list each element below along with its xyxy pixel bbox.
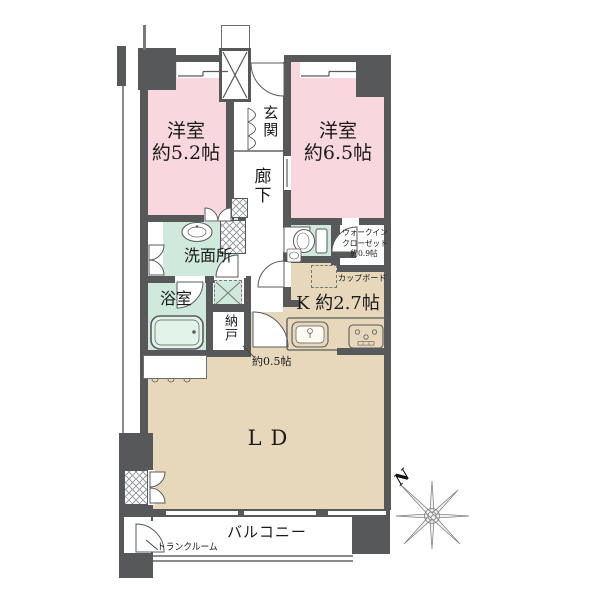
- entrance-door-opening: [251, 55, 284, 62]
- trunk-room-label: トランクルーム: [157, 543, 218, 554]
- cupboard-label: カップボード: [338, 275, 386, 285]
- bedroom2-label: 洋室 約6.5帖: [286, 121, 390, 165]
- living-dining-label: LD: [237, 426, 307, 450]
- counter-storage: [143, 355, 207, 379]
- wall-toilet-wic: [331, 218, 340, 272]
- entrance-step-line: [234, 150, 283, 152]
- kitchen-door-opening: [283, 262, 291, 287]
- wall-storage-top: [213, 304, 251, 312]
- wall-wic-bottom: [339, 265, 388, 272]
- bedroom1-size: 約5.2帖: [134, 143, 238, 165]
- pillar-bottom-right: [352, 509, 390, 554]
- wall-below-bedroom1: [140, 215, 206, 222]
- cupboard-box: [311, 265, 337, 288]
- washroom-closet-door-top: [149, 245, 164, 260]
- washroom-label: 洗面所: [172, 247, 244, 265]
- wic-line3: 約0.9帖: [342, 249, 386, 260]
- wall-counter-stub: [337, 348, 391, 355]
- bath-door-opening: [175, 276, 205, 283]
- neighbor-stub-line: [143, 25, 146, 50]
- trunk-room-cutout: [124, 517, 151, 553]
- bedroom1-label: 洋室 約5.2帖: [134, 121, 238, 165]
- pipe-space-hatch: [231, 198, 248, 218]
- kitchen-label: K 約2.7帖: [288, 294, 388, 315]
- hallway-label: 廊下: [250, 167, 270, 205]
- floor-plan: N 洋室 約5.2帖 洋室 約6.5帖 玄関 廊下 洗面所 浴室 納戸 約0.5…: [0, 0, 600, 600]
- wic-door-opening: [342, 218, 359, 225]
- toilet-door-opening: [283, 228, 291, 252]
- balcony-rail-inner: [153, 560, 353, 562]
- hall-extension-floor: [251, 270, 283, 312]
- storage-label: 納戸: [221, 314, 236, 342]
- wic-line2: クローゼット: [342, 239, 386, 250]
- trunk-door-opening: [148, 521, 155, 550]
- meter-box-bottom-hatch: [124, 470, 148, 505]
- washer-space: [214, 280, 242, 306]
- compass-north-label: N: [389, 464, 414, 489]
- wall-top-right: [284, 55, 358, 62]
- bedroom2-name: 洋室: [286, 121, 390, 143]
- mb-door-opening: [148, 470, 155, 505]
- window-ld-1: [166, 511, 238, 515]
- compass-icon: N: [389, 464, 469, 549]
- bedroom2-closet: [300, 62, 357, 78]
- elevator-shaft: [219, 48, 251, 102]
- washroom-closet-door-bottom: [149, 260, 164, 275]
- storage-size-label: 約0.5帖: [252, 356, 292, 369]
- entrance-label: 玄関: [261, 105, 278, 139]
- wic-line1: ウォークイン: [342, 228, 386, 239]
- pillar-neighbor-stub: [117, 46, 126, 86]
- wall-storage-hall: [244, 276, 251, 352]
- toilet-floor: [287, 225, 331, 258]
- balcony-label: バルコニー: [212, 524, 322, 541]
- bedroom2-size: 約6.5帖: [286, 143, 390, 165]
- wic-label: ウォークイン クローゼット 約0.9帖: [342, 228, 386, 260]
- pillar-column-bottom-left: [119, 433, 153, 578]
- window-ld-3: [328, 511, 386, 515]
- property-line: [122, 86, 124, 433]
- bathroom-label: 浴室: [144, 290, 208, 308]
- window-ld-2: [244, 511, 316, 515]
- balcony-rail-outer: [153, 555, 353, 557]
- bedroom1-name: 洋室: [134, 121, 238, 143]
